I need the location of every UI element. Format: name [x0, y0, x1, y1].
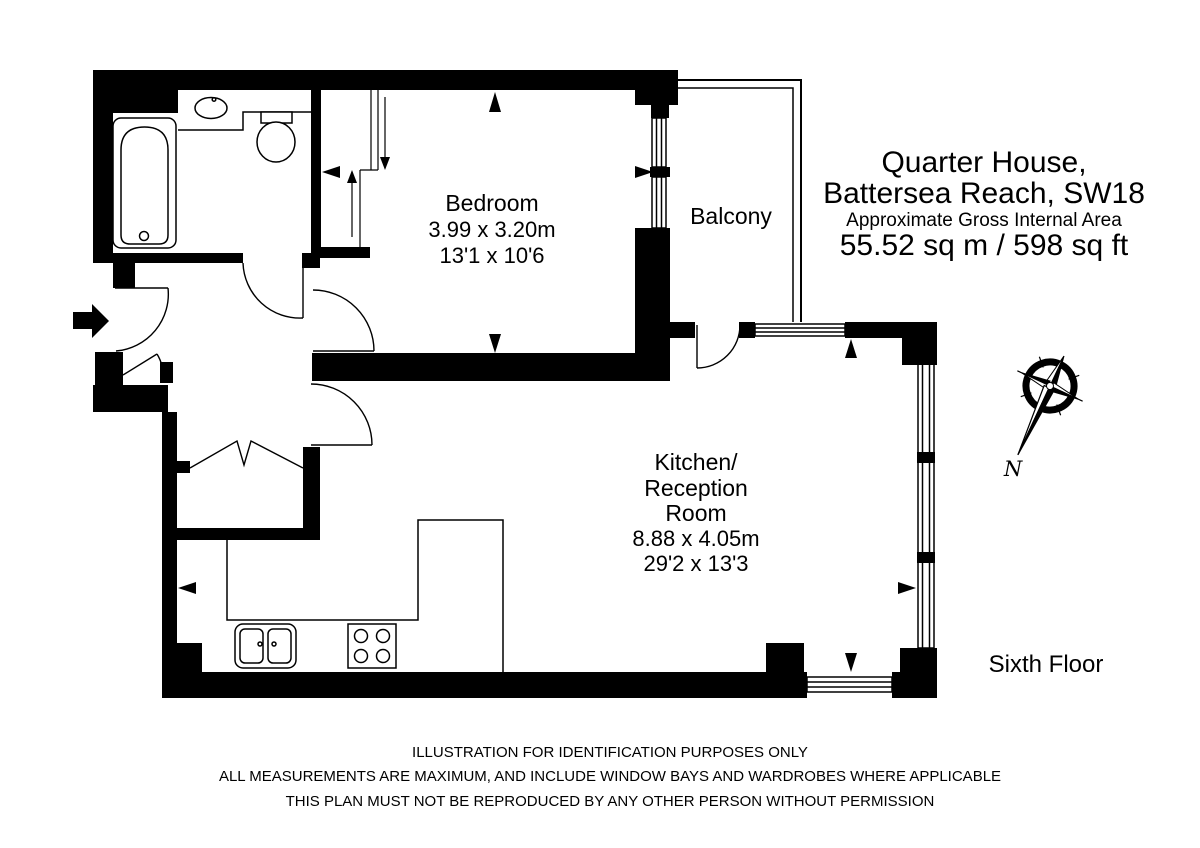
title-area-value: 55.52 sq m / 598 sq ft	[840, 229, 1129, 262]
wardrobe-extent-arrows	[347, 97, 390, 237]
disclaimer-line2: ALL MEASUREMENTS ARE MAXIMUM, AND INCLUD…	[219, 768, 1001, 785]
balcony-label: Balcony	[690, 203, 772, 229]
kitchen-imperial: 29'2 x 13'3	[643, 551, 748, 576]
bedroom-door	[313, 290, 374, 351]
basin	[195, 98, 227, 119]
kitchen-label-line3: Room	[665, 500, 726, 526]
entry-door	[115, 288, 168, 351]
window-right-bay	[917, 363, 935, 648]
kitchen-door	[311, 384, 372, 445]
closet-bifold-doors	[190, 441, 303, 468]
walls	[93, 70, 937, 698]
balcony-railing	[678, 80, 801, 322]
bedroom-label: Bedroom	[445, 190, 538, 216]
compass-rose-icon: N	[985, 341, 1096, 481]
disclaimer-line1: ILLUSTRATION FOR IDENTIFICATION PURPOSES…	[412, 744, 808, 761]
title-line1: Quarter House,	[881, 146, 1086, 179]
bathroom-door	[243, 263, 303, 318]
kitchen-label-line1: Kitchen/	[654, 449, 738, 475]
bedroom-wardrobe	[347, 90, 390, 247]
title-line2: Battersea Reach, SW18	[823, 177, 1145, 210]
bedroom-metric: 3.99 x 3.20m	[428, 217, 555, 242]
kitchen-arrow-right	[898, 582, 916, 594]
cupboard-door	[123, 354, 162, 375]
kitchen-arrow-up	[845, 339, 857, 358]
floorplan-page: N Quarter House, Battersea Reach, SW18 A…	[0, 0, 1200, 848]
window-bottom	[807, 672, 892, 698]
kitchen-arrow-left	[178, 582, 196, 594]
entrance-arrow-icon	[73, 304, 109, 338]
bedroom-imperial: 13'1 x 10'6	[439, 243, 544, 268]
hob	[348, 624, 396, 668]
kitchen-sink	[235, 624, 296, 668]
kitchen-counter	[227, 520, 503, 672]
arrows	[73, 92, 916, 672]
bedroom-arrow-left	[322, 166, 340, 178]
toilet	[257, 112, 295, 162]
title-area-label: Approximate Gross Internal Area	[846, 210, 1122, 231]
bathroom-fixtures	[113, 98, 311, 249]
floorplan-drawing: N Quarter House, Battersea Reach, SW18 A…	[0, 0, 1200, 848]
balcony-door	[697, 325, 740, 368]
kitchen-label-line2: Reception	[644, 475, 748, 501]
kitchen-arrow-down	[845, 653, 857, 672]
bedroom-arrow-down	[489, 334, 501, 353]
kitchen-metric: 8.88 x 4.05m	[632, 526, 759, 551]
bathtub	[113, 118, 176, 248]
floor-label: Sixth Floor	[989, 651, 1104, 678]
compass-north-label: N	[1003, 457, 1023, 481]
disclaimer-line3: THIS PLAN MUST NOT BE REPRODUCED BY ANY …	[286, 793, 935, 810]
bedroom-arrow-up	[489, 92, 501, 112]
